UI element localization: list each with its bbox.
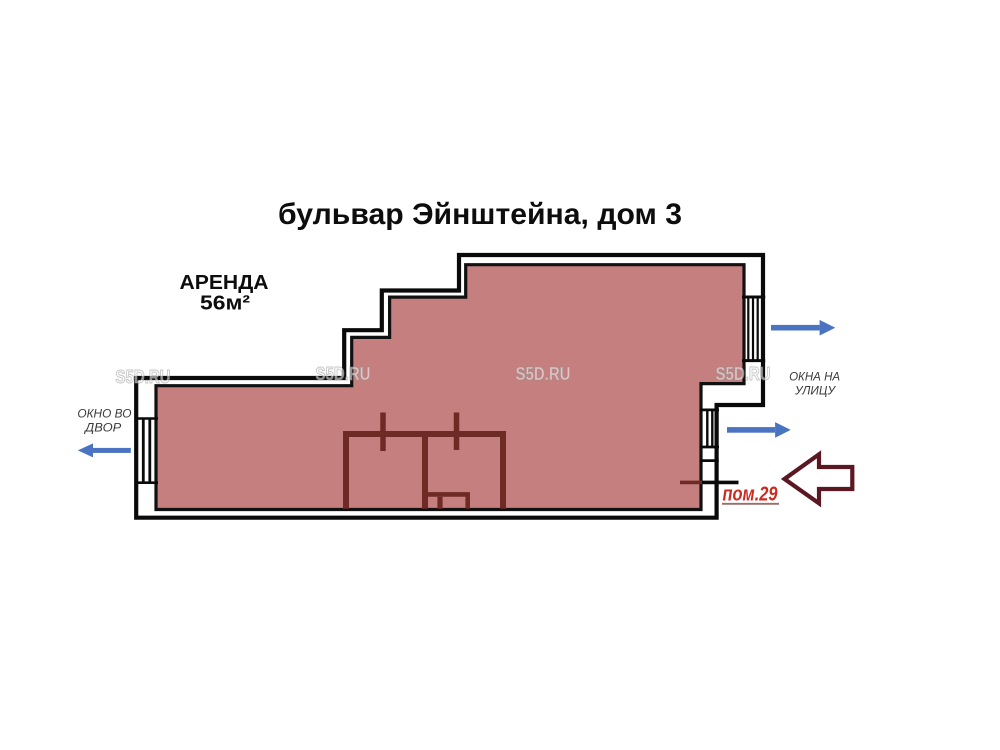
- svg-text:пом.29: пом.29: [723, 484, 779, 506]
- svg-text:ОКНА НА: ОКНА НА: [789, 372, 840, 384]
- svg-text:S5D.RU: S5D.RU: [716, 364, 771, 384]
- svg-text:бульвар Эйнштейна, дом 3: бульвар Эйнштейна, дом 3: [278, 198, 682, 231]
- svg-text:ДВОР: ДВОР: [83, 422, 122, 434]
- svg-text:УЛИЦУ: УЛИЦУ: [794, 386, 837, 398]
- svg-text:S5D.RU: S5D.RU: [116, 367, 171, 387]
- svg-text:56м²: 56м²: [200, 293, 250, 315]
- svg-text:ОКНО ВО: ОКНО ВО: [77, 408, 131, 420]
- svg-text:S5D.RU: S5D.RU: [516, 364, 571, 384]
- svg-text:АРЕНДА: АРЕНДА: [180, 272, 269, 294]
- svg-text:S5D.RU: S5D.RU: [316, 364, 371, 384]
